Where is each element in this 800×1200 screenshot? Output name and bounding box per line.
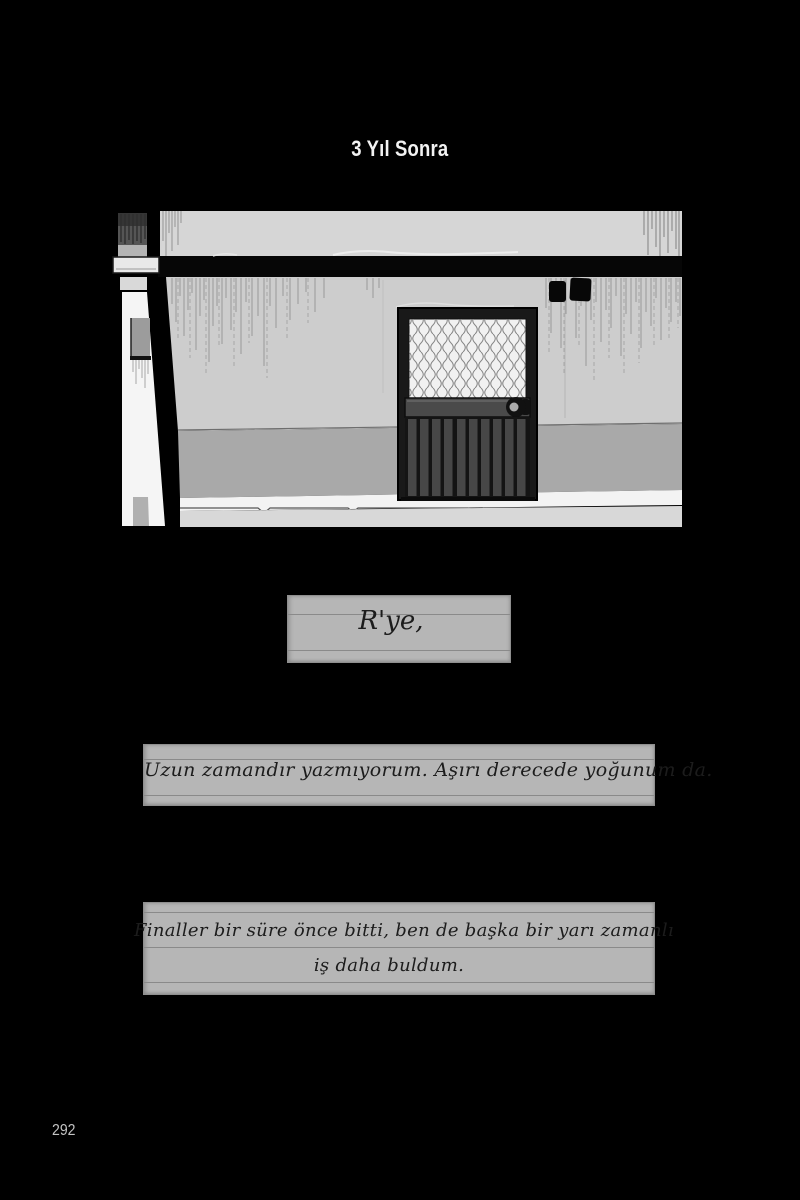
chapter-title: 3 Yıl Sonra	[0, 136, 800, 162]
pillar-ledge	[113, 257, 159, 273]
letter-text: R'ye,	[280, 606, 502, 636]
page-number: 292	[52, 1122, 79, 1140]
letter-note-1: R'ye,	[287, 595, 511, 663]
letter-text-line-1: Finaller bir süre önce bitti, ben de baş…	[134, 913, 644, 948]
chapter-title-text: 3 Yıl Sonra	[351, 136, 448, 162]
mesh-door	[396, 303, 537, 501]
pillar-sign	[131, 318, 150, 358]
letter-text-line-2: iş daha buldum.	[134, 948, 644, 983]
letter-text: Uzun zamandır yazmıyorum. Aşırı derecede…	[144, 759, 654, 781]
letter-text: Finaller bir süre önce bitti, ben de baş…	[134, 913, 644, 983]
page-number-text: 292	[52, 1122, 75, 1140]
comic-panel-illustration	[112, 208, 682, 528]
letter-note-3: Finaller bir süre önce bitti, ben de baş…	[143, 902, 655, 995]
letter-note-2: Uzun zamandır yazmıyorum. Aşırı derecede…	[143, 744, 655, 806]
wire-mesh-window	[409, 319, 526, 398]
